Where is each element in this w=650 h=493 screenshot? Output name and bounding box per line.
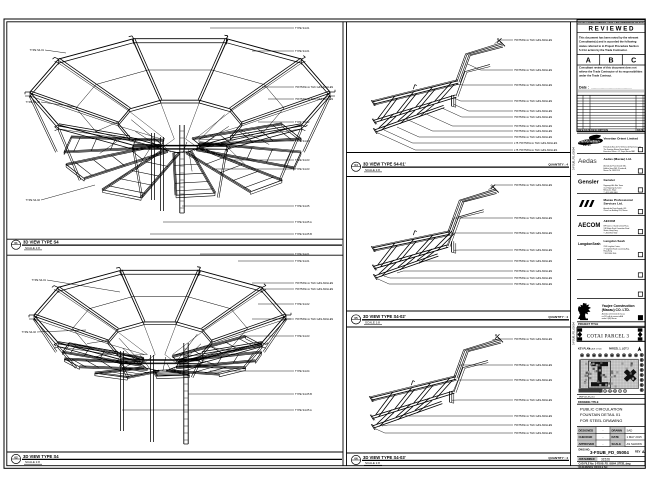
svg-text:Executive Offices - L2, Taipa,: Executive Offices - L2, Taipa, Macau SAR bbox=[604, 150, 636, 153]
svg-text:SAD: SAD bbox=[627, 428, 633, 432]
svg-text:under the Trade Contract.: under the Trade Contract. bbox=[579, 74, 612, 78]
svg-text:TYPE S4-04: TYPE S4-04 bbox=[295, 139, 310, 143]
svg-text:-: - bbox=[603, 442, 604, 446]
svg-text:05: 05 bbox=[354, 316, 358, 320]
svg-text:75X75X6mm THK G&S ANGLES: 75X75X6mm THK G&S ANGLES bbox=[295, 85, 333, 89]
svg-text:04: 04 bbox=[354, 163, 358, 167]
svg-text:TYPE S4-01: TYPE S4-01 bbox=[30, 48, 45, 52]
svg-text:75X75X6mm THK G&S ANGLES: 75X75X6mm THK G&S ANGLES bbox=[514, 414, 552, 418]
svg-text:QUANTITY : 4: QUANTITY : 4 bbox=[548, 163, 568, 167]
svg-text:A: A bbox=[586, 58, 591, 65]
svg-text:75X75X6mm THK G&S ANGLES: 75X75X6mm THK G&S ANGLES bbox=[514, 423, 552, 427]
svg-text:02: 02 bbox=[14, 455, 18, 459]
svg-text:..............................: ........................................… bbox=[591, 85, 632, 89]
svg-text:DRAWING TITLE: DRAWING TITLE bbox=[578, 400, 599, 404]
svg-text:Consultant review of this: Consultant review of this document does … bbox=[579, 66, 637, 70]
svg-text:COTAI STRIP: COTAI STRIP bbox=[606, 390, 618, 393]
svg-text:Consultants(s) and is accor: Consultants(s) and is accorded the follo… bbox=[579, 40, 637, 44]
svg-text:REFERENCE ON FILE No:: REFERENCE ON FILE No: bbox=[579, 466, 609, 469]
svg-text:L75 75X75X6mm THK G&S ANGLES: L75 75X75X6mm THK G&S ANGLES bbox=[514, 148, 557, 152]
svg-text:FOUNTAIN DETAIL 01: FOUNTAIN DETAIL 01 bbox=[580, 412, 621, 417]
svg-text:(Macau) CO. LTD.: (Macau) CO. LTD. bbox=[602, 308, 630, 312]
svg-text:FOR STEEL DRAWING: FOR STEEL DRAWING bbox=[580, 418, 622, 423]
svg-text:TYPE S4-05 A: TYPE S4-05 A bbox=[295, 220, 312, 224]
svg-text:75X75X6mm THK G&S ANGLES: 75X75X6mm THK G&S ANGLES bbox=[295, 287, 333, 291]
svg-text:TYPE S4-05 A: TYPE S4-05 A bbox=[295, 408, 312, 412]
svg-text:SCALE 1:8: SCALE 1:8 bbox=[365, 168, 380, 172]
svg-text:Langdon Seah: Langdon Seah bbox=[604, 239, 625, 243]
svg-text:75X75X6mm THK G&S ANGLES: 75X75X6mm THK G&S ANGLES bbox=[514, 398, 552, 402]
svg-text:TYPE S4-01: TYPE S4-01 bbox=[32, 278, 47, 282]
svg-text:APPROVED: APPROVED bbox=[579, 442, 595, 446]
svg-text:3D VIEW TYPE S4: 3D VIEW TYPE S4 bbox=[23, 240, 59, 245]
svg-text:SCALE 1:8: SCALE 1:8 bbox=[365, 461, 380, 465]
svg-text:Macau Tel: 2833 1113: Macau Tel: 2833 1113 bbox=[604, 170, 620, 172]
svg-text:PROJECT TITLE: PROJECT TITLE bbox=[578, 322, 598, 326]
svg-text:3D VIEW TYPE S4-02': 3D VIEW TYPE S4-02' bbox=[363, 314, 406, 319]
svg-text:Services Ltd.: Services Ltd. bbox=[604, 202, 623, 206]
svg-text:QUANTITY : 4: QUANTITY : 4 bbox=[548, 315, 568, 319]
svg-text:1 MAY 2015: 1 MAY 2015 bbox=[627, 435, 643, 439]
svg-text:TYPE S4-02: TYPE S4-02 bbox=[295, 120, 310, 124]
svg-text:75X75X6mm THK G&S ANGLES: 75X75X6mm THK G&S ANGLES bbox=[514, 248, 552, 252]
svg-text:75X75X6mm THK G&S ANGLES: 75X75X6mm THK G&S ANGLES bbox=[514, 276, 552, 280]
svg-text:75X75X6mm THK G&S ANGLES: 75X75X6mm THK G&S ANGLES bbox=[514, 431, 552, 435]
svg-text:75X75X6mm THK G&S ANGLES: 75X75X6mm THK G&S ANGLES bbox=[514, 378, 552, 382]
svg-text:AECOM: AECOM bbox=[604, 219, 616, 223]
svg-text:75X75X6mm THK G&S ANGLES: 75X75X6mm THK G&S ANGLES bbox=[514, 231, 552, 235]
svg-text:75X75X6mm THK G&S ANGLES: 75X75X6mm THK G&S ANGLES bbox=[514, 115, 552, 119]
svg-text:3-FSUB_FD_05004: 3-FSUB_FD_05004 bbox=[572, 322, 576, 345]
svg-text:75X75X6mm THK G&S ANGLES: 75X75X6mm THK G&S ANGLES bbox=[514, 99, 552, 103]
svg-text:relieve the Trade Contracto: relieve the Trade Contractor of its resp… bbox=[579, 70, 643, 74]
svg-text:L75 75X75X6mm THK G&S ANGLES: L75 75X75X6mm THK G&S ANGLES bbox=[514, 141, 557, 145]
svg-text:75X75X6mm THK G&S ANGLES: 75X75X6mm THK G&S ANGLES bbox=[514, 337, 552, 341]
svg-text:DESIGNED: DESIGNED bbox=[579, 428, 594, 432]
svg-text:Aedas (Macau) Ltd.: Aedas (Macau) Ltd. bbox=[604, 157, 633, 161]
svg-text:75X75X6mm THK G&S ANGLES: 75X75X6mm THK G&S ANGLES bbox=[514, 38, 552, 42]
svg-text:75X75X6mm THK G&S ANGLES: 75X75X6mm THK G&S ANGLES bbox=[295, 97, 333, 101]
svg-text:DESCRIPTION: DESCRIPTION bbox=[591, 129, 608, 132]
svg-text:75X75X6mm THK G&S ANGLES: 75X75X6mm THK G&S ANGLES bbox=[514, 282, 552, 286]
svg-text:Gensler: Gensler bbox=[604, 178, 616, 182]
svg-text:06: 06 bbox=[354, 456, 358, 460]
svg-text:TYPE S4-02: TYPE S4-02 bbox=[26, 100, 41, 104]
svg-text:This document has been not: This document has been noted by the rele… bbox=[579, 36, 638, 40]
svg-text:AECOM: AECOM bbox=[578, 223, 600, 229]
svg-text:75X75X6mm THK G&S ANGLES: 75X75X6mm THK G&S ANGLES bbox=[514, 129, 552, 133]
svg-text:status referred to in Pro: status referred to in Project Procedure … bbox=[579, 44, 639, 48]
svg-text:DATE: DATE bbox=[612, 435, 620, 439]
svg-text:75X75X6mm THK G&S ANGLES: 75X75X6mm THK G&S ANGLES bbox=[514, 216, 552, 220]
svg-text:75X75X6mm THK G&S ANGLES: 75X75X6mm THK G&S ANGLES bbox=[295, 281, 333, 285]
svg-text:JOB NUMBER: JOB NUMBER bbox=[579, 458, 595, 461]
svg-text:theVenetian: theVenetian bbox=[578, 140, 600, 144]
svg-text:T 852 2830 3500: T 852 2830 3500 bbox=[604, 253, 617, 255]
svg-text:TYPE S4-05 B: TYPE S4-05 B bbox=[295, 232, 312, 236]
svg-text:SCALE 1:8: SCALE 1:8 bbox=[25, 246, 40, 250]
svg-text:REV: REV bbox=[635, 450, 641, 454]
svg-text:PARCEL 1, LOT 2: PARCEL 1, LOT 2 bbox=[609, 348, 629, 351]
svg-text:LangdonSeah: LangdonSeah bbox=[578, 242, 600, 246]
svg-text:TYPE S4-05: TYPE S4-05 bbox=[295, 204, 310, 208]
svg-text:TYPE S4-02: TYPE S4-02 bbox=[26, 198, 41, 202]
svg-text:5.4 for action by the Tra: 5.4 for action by the Trade Contractor. bbox=[579, 48, 628, 52]
svg-text:TYPE S4-03: TYPE S4-03 bbox=[295, 158, 310, 162]
svg-text:75X75X6mm THK G&S ANGLES: 75X75X6mm THK G&S ANGLES bbox=[514, 83, 552, 87]
svg-text:3D VIEW TYPE S4-03': 3D VIEW TYPE S4-03' bbox=[363, 455, 406, 460]
svg-text:75X75X6mm THK G&S ANGLES: 75X75X6mm THK G&S ANGLES bbox=[514, 68, 552, 72]
svg-text:3-FSUB_FD_05004: 3-FSUB_FD_05004 bbox=[590, 450, 629, 455]
svg-text:A: A bbox=[642, 450, 645, 454]
svg-text:3-FSUB_FD_05004: 3-FSUB_FD_05004 bbox=[572, 147, 576, 170]
svg-text:B: B bbox=[608, 58, 613, 65]
svg-text:COTAI PARCEL 3: COTAI PARCEL 3 bbox=[587, 334, 630, 339]
svg-text:Date :: Date : bbox=[579, 85, 589, 89]
svg-text:PUBLIC CIRCULATION: PUBLIC CIRCULATION bbox=[580, 407, 622, 412]
svg-text:DWG NO:: DWG NO: bbox=[579, 448, 591, 452]
svg-text:TYPE S4-01: TYPE S4-01 bbox=[295, 26, 310, 30]
svg-text:75X75X6mm THK G&S ANGLES: 75X75X6mm THK G&S ANGLES bbox=[514, 269, 552, 273]
svg-text:QUANTITY : 4: QUANTITY : 4 bbox=[548, 456, 568, 460]
svg-text:Venetian Orient Limited: Venetian Orient Limited bbox=[604, 136, 639, 140]
svg-text:R E V I E W E D: R E V I E W E D bbox=[588, 26, 634, 33]
svg-text:TYPE S4-01: TYPE S4-01 bbox=[295, 259, 310, 263]
svg-text:75X75X6mm THK G&S ANGLES: 75X75X6mm THK G&S ANGLES bbox=[514, 363, 552, 367]
svg-text:75X75X6mm THK G&S ANGLES: 75X75X6mm THK G&S ANGLES bbox=[514, 135, 552, 139]
svg-text:TYPE S4-05 B: TYPE S4-05 B bbox=[295, 392, 312, 396]
svg-text:TYPE S4-02: TYPE S4-02 bbox=[295, 302, 310, 306]
svg-text:SCALE: SCALE bbox=[612, 442, 622, 446]
svg-text:REV: REV bbox=[578, 129, 583, 132]
svg-text:SCALE 1:7500: SCALE 1:7500 bbox=[589, 348, 602, 351]
svg-text:75X75X6mm THK G&S ANGLES: 75X75X6mm THK G&S ANGLES bbox=[514, 109, 552, 113]
svg-text:TYPE S4-03: TYPE S4-03 bbox=[295, 334, 310, 338]
svg-text:-: - bbox=[603, 435, 604, 439]
svg-text:-: - bbox=[603, 428, 604, 432]
svg-text:SCALE 1:8: SCALE 1:8 bbox=[25, 460, 40, 464]
svg-text:3D VIEW TYPE S4: 3D VIEW TYPE S4 bbox=[23, 454, 59, 459]
svg-text:31526: 31526 bbox=[601, 457, 610, 461]
svg-text:75X75X6mm THK G&S ANGLES: 75X75X6mm THK G&S ANGLES bbox=[514, 183, 552, 187]
svg-text:Aedas: Aedas bbox=[578, 158, 597, 165]
svg-text:Gensler: Gensler bbox=[578, 180, 600, 186]
svg-text:TYPE S4-03: TYPE S4-03 bbox=[295, 167, 310, 171]
svg-text:andar 6 (6E) Macau: andar 6 (6E) Macau bbox=[602, 317, 617, 320]
svg-text:DATE: DATE bbox=[637, 129, 644, 132]
svg-text:China Law Building 21/F, Macau: China Law Building 21/F, Macau bbox=[604, 210, 628, 212]
svg-text:TYPE S4-01: TYPE S4-01 bbox=[295, 252, 310, 256]
svg-text:DATE: DATE bbox=[584, 129, 591, 132]
svg-text:T +852 3922 9000: T +852 3922 9000 bbox=[604, 232, 618, 234]
svg-text:3D VIEW TYPE S4-01': 3D VIEW TYPE S4-01' bbox=[363, 162, 406, 167]
svg-text:CHECKED: CHECKED bbox=[579, 435, 593, 439]
svg-text:TYPE S4-02: TYPE S4-02 bbox=[22, 330, 37, 334]
svg-text:C: C bbox=[631, 58, 636, 65]
svg-text:DRAWN: DRAWN bbox=[612, 428, 623, 432]
svg-text:T +81 3 6406 6600: T +81 3 6406 6600 bbox=[604, 192, 618, 194]
svg-text:75X75X6mm THK G&S ANGLES: 75X75X6mm THK G&S ANGLES bbox=[295, 317, 333, 321]
svg-text:75X75X6mm THK G&S ANGLES: 75X75X6mm THK G&S ANGLES bbox=[514, 124, 552, 128]
svg-text:TYPE S4-01: TYPE S4-01 bbox=[295, 49, 310, 53]
svg-text:MWP103-SK-051: MWP103-SK-051 bbox=[579, 397, 595, 399]
svg-text:TYPE S4-04: TYPE S4-04 bbox=[295, 369, 310, 373]
svg-text:75X75X6mm THK G&S ANGLES: 75X75X6mm THK G&S ANGLES bbox=[514, 259, 552, 263]
svg-text:AS SHOWN: AS SHOWN bbox=[627, 442, 642, 446]
svg-text:01: 01 bbox=[14, 241, 18, 245]
svg-text:SCALE 1:8: SCALE 1:8 bbox=[365, 321, 380, 325]
